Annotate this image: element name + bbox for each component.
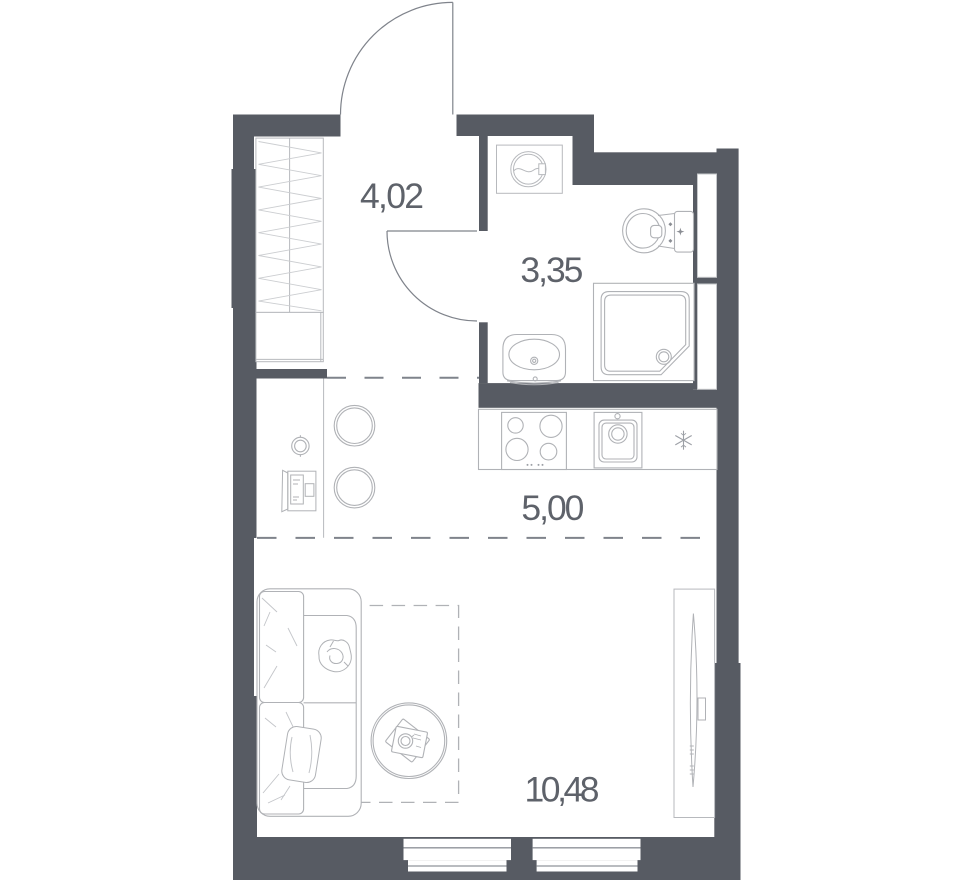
svg-text:3,35: 3,35 — [520, 250, 583, 290]
svg-text:4,02: 4,02 — [360, 176, 424, 216]
svg-text:10,48: 10,48 — [525, 770, 600, 810]
svg-text:5,00: 5,00 — [521, 488, 584, 528]
